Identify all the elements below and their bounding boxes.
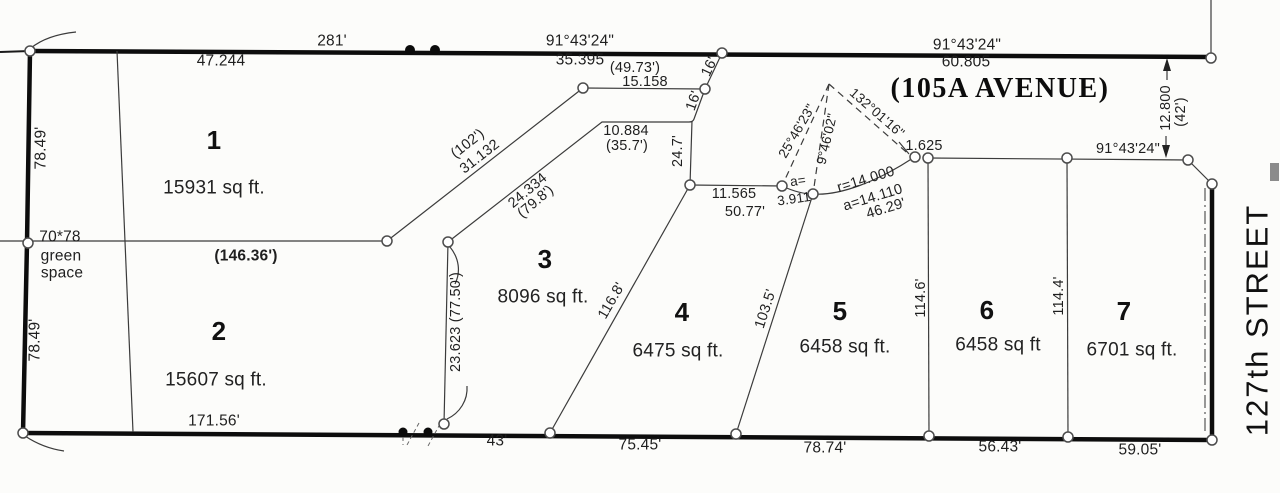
- green-space-name-line1: green: [41, 248, 82, 264]
- dim-15-158-label: 15.158: [622, 75, 668, 90]
- dim-10-884-label: 10.884: [603, 124, 649, 139]
- lot-2-area: 15607 sq ft.: [165, 371, 267, 390]
- dim-50-77-label: 50.77': [725, 205, 765, 220]
- bearing-street-line-label: 91°43'24": [1096, 142, 1160, 157]
- curve-a-prefix-label: a=: [789, 173, 807, 189]
- dim-35-395-label: 35.395: [556, 52, 605, 68]
- offset-12-800-label: 12.800: [1159, 85, 1174, 131]
- dim-47-244-label: 47.244: [197, 53, 246, 69]
- lot-6-area: 6458 sq ft: [955, 336, 1040, 355]
- dim-78-74-label: 78.74': [804, 440, 847, 456]
- dim-114-6-label: 114.6': [914, 278, 929, 317]
- dim-24-7-label: 24.7': [671, 135, 686, 167]
- lot-4-number: 4: [675, 299, 690, 325]
- green-space-dims-label: 70*78: [39, 229, 81, 245]
- dim-35-7-label: (35.7'): [606, 139, 648, 154]
- dim-114-4-label: 114.4': [1052, 276, 1067, 315]
- scrollbar-thumb[interactable]: [1270, 163, 1279, 181]
- green-space-name-line2: space: [41, 265, 83, 281]
- dim-146-36-label: (146.36'): [214, 248, 277, 264]
- dim-78-49-upper-label: 78.49': [33, 127, 49, 170]
- bearing-top-right-label: 91°43'24": [933, 37, 1001, 53]
- lot-3-area: 8096 sq ft.: [498, 288, 589, 307]
- lot-2-number: 2: [212, 318, 227, 344]
- dim-11-565-label: 11.565: [712, 187, 756, 202]
- avenue-name-label: (105A AVENUE): [891, 75, 1110, 103]
- dim-43ft-label: 43': [487, 433, 508, 449]
- lot-7-area: 6701 sq ft.: [1087, 341, 1178, 360]
- curve-offset-1-625-label: 1.625: [905, 139, 942, 154]
- dim-59-05-label: 59.05': [1119, 442, 1162, 458]
- dim-60-805-label: 60.805: [942, 54, 991, 70]
- dim-75-45-label: 75.45': [619, 437, 662, 453]
- plat-canvas: 47.244 281' 91°43'24" 35.395 91°43'24" 6…: [0, 0, 1280, 493]
- lot-1-area: 15931 sq ft.: [163, 179, 265, 198]
- lot-5-area: 6458 sq ft.: [800, 338, 891, 357]
- lot-7-number: 7: [1117, 298, 1132, 324]
- offset-42ft-label: (42'): [1174, 97, 1189, 127]
- bearing-top-mid-label: 91°43'24": [546, 33, 614, 49]
- dim-23-623-label: 23.623 (77.50'): [449, 272, 464, 372]
- dim-78-49-lower-label: 78.49': [27, 319, 43, 362]
- dim-171-56-label: 171.56': [188, 413, 240, 429]
- dim-56-43-label: 56.43': [979, 439, 1022, 455]
- lot-1-number: 1: [207, 127, 222, 153]
- lot-5-number: 5: [833, 298, 848, 324]
- lot-4-area: 6475 sq ft.: [633, 342, 724, 361]
- lot-6-number: 6: [980, 297, 995, 323]
- lot-3-number: 3: [538, 246, 553, 272]
- cross-street-name-label: 127th STREET: [1242, 204, 1273, 436]
- dim-281ft-label: 281': [317, 33, 347, 49]
